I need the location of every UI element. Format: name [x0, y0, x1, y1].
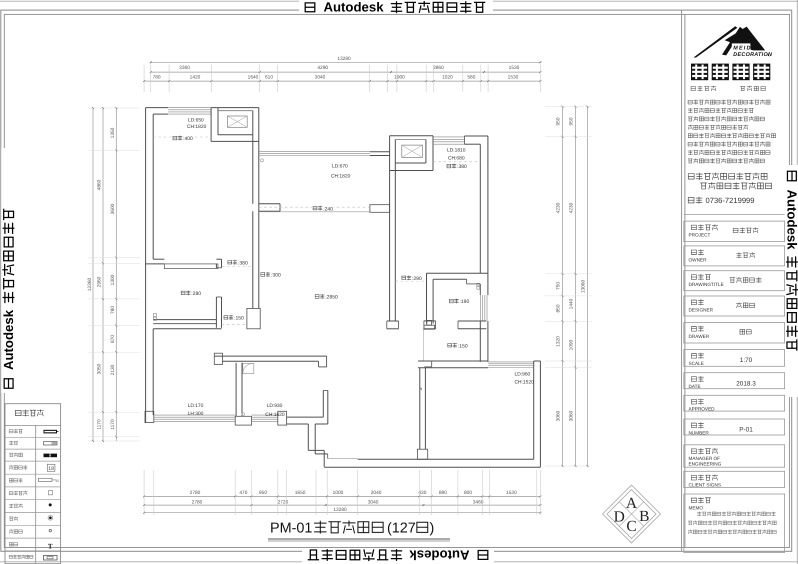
svg-text:2960: 2960 [97, 276, 103, 287]
svg-text:T: T [48, 542, 53, 550]
svg-text:950: 950 [569, 117, 575, 125]
svg-text:1020: 1020 [442, 75, 453, 81]
svg-text:MEIDI: MEIDI [733, 46, 754, 52]
svg-text:D: D [614, 508, 625, 525]
svg-text:850: 850 [556, 304, 562, 312]
svg-text:NUMBER: NUMBER [689, 430, 710, 435]
svg-text::380: :380 [238, 260, 248, 266]
svg-text:3040: 3040 [368, 500, 379, 506]
svg-text:P-01: P-01 [739, 427, 753, 434]
svg-text:CH:1820: CH:1820 [331, 174, 351, 180]
svg-text:4290: 4290 [317, 65, 328, 71]
svg-text:Autodesk: Autodesk [323, 0, 384, 15]
svg-text:DATE: DATE [689, 384, 701, 389]
svg-text:CH:1820: CH:1820 [187, 124, 207, 130]
svg-text::2850: :2850 [325, 295, 338, 301]
svg-text:DESIGNER: DESIGNER [689, 307, 714, 312]
svg-text:SCALE: SCALE [689, 361, 704, 366]
svg-text:PM-01: PM-01 [270, 521, 312, 537]
svg-text:4230: 4230 [569, 202, 575, 213]
svg-text:DRAWER: DRAWER [689, 334, 710, 339]
svg-text::280: :280 [191, 291, 201, 297]
svg-text:ENGINEERING: ENGINEERING [689, 461, 722, 466]
svg-text:1170: 1170 [110, 419, 116, 430]
svg-text:3060: 3060 [569, 410, 575, 421]
svg-text:2720: 2720 [278, 500, 289, 506]
svg-text::150: :150 [234, 316, 244, 322]
svg-text:13280: 13280 [337, 56, 351, 62]
svg-text:LD:930: LD:930 [267, 403, 283, 409]
svg-text:4230: 4230 [556, 202, 562, 213]
svg-text:3040: 3040 [315, 75, 326, 81]
svg-text:1000: 1000 [333, 490, 344, 496]
svg-text:MANAGER OF: MANAGER OF [689, 456, 721, 461]
svg-text::240: :240 [323, 206, 333, 212]
svg-text::190: :190 [460, 299, 470, 305]
svg-text:B: B [639, 508, 649, 525]
svg-text:2130: 2130 [110, 364, 116, 375]
svg-text:18: 18 [48, 466, 54, 472]
svg-text:OWNER: OWNER [689, 257, 708, 262]
svg-text::380: :380 [457, 164, 467, 170]
svg-text:1530: 1530 [509, 65, 520, 71]
svg-text:CH:680: CH:680 [448, 156, 465, 162]
svg-text:870: 870 [110, 335, 116, 343]
svg-text:2860: 2860 [433, 65, 444, 71]
svg-text:Autodesk: Autodesk [785, 189, 798, 250]
svg-text:1:70: 1:70 [740, 357, 753, 364]
svg-text:3600: 3600 [110, 203, 116, 214]
svg-text:Autodesk: Autodesk [409, 548, 470, 563]
svg-text:1090: 1090 [569, 339, 575, 350]
svg-text:780: 780 [153, 75, 161, 81]
svg-text:1440: 1440 [569, 298, 575, 309]
svg-text:1900: 1900 [394, 75, 405, 81]
svg-text:1350: 1350 [110, 127, 116, 138]
svg-text:(127: (127 [387, 521, 416, 537]
svg-text:LH:300: LH:300 [188, 411, 204, 417]
svg-text:430: 430 [418, 490, 426, 496]
svg-text:950: 950 [259, 490, 267, 496]
svg-text:3060: 3060 [556, 410, 562, 421]
svg-text:LD:170: LD:170 [188, 403, 204, 409]
svg-text:C: C [626, 518, 636, 535]
svg-text:1640: 1640 [248, 75, 259, 81]
svg-text:780: 780 [110, 306, 116, 314]
svg-text::290: :290 [412, 276, 422, 282]
svg-text:12360: 12360 [87, 278, 93, 292]
svg-text:3050: 3050 [97, 363, 103, 374]
svg-text:MEMO: MEMO [689, 505, 704, 510]
svg-text:1650: 1650 [295, 490, 306, 496]
svg-text:DECORATION: DECORATION [733, 52, 772, 58]
svg-text:13060: 13060 [581, 280, 587, 294]
svg-text:APPROVED: APPROVED [689, 407, 716, 412]
svg-text:LD:1810: LD:1810 [447, 148, 466, 154]
svg-text:DRAWINGTITLE: DRAWINGTITLE [689, 282, 724, 287]
svg-text:2018.3: 2018.3 [736, 380, 756, 387]
svg-text:950: 950 [556, 117, 562, 125]
svg-text:750: 750 [556, 282, 562, 290]
svg-text:580: 580 [467, 75, 475, 81]
svg-text:470: 470 [239, 490, 247, 496]
svg-text:1530: 1530 [508, 75, 519, 81]
svg-text:PROJECT: PROJECT [689, 233, 711, 238]
svg-text:610: 610 [265, 75, 273, 81]
svg-text:2780: 2780 [192, 500, 203, 506]
svg-text:1170: 1170 [97, 419, 103, 430]
svg-text:3360: 3360 [179, 65, 190, 71]
svg-text:LD:960: LD:960 [515, 372, 531, 378]
svg-text:CLIENT SIGNS: CLIENT SIGNS [689, 483, 721, 488]
svg-text:4860: 4860 [97, 179, 103, 190]
svg-text:Autodesk: Autodesk [1, 309, 16, 370]
svg-text:880: 880 [439, 490, 447, 496]
svg-text::300: :300 [271, 273, 281, 279]
svg-text:1530: 1530 [506, 490, 517, 496]
svg-text:CH:1620: CH:1620 [265, 412, 285, 418]
svg-text:2040: 2040 [371, 490, 382, 496]
svg-text:LD:650: LD:650 [188, 117, 204, 123]
svg-text:800: 800 [464, 490, 472, 496]
svg-text:1300: 1300 [110, 274, 116, 285]
svg-text:1420: 1420 [190, 75, 201, 81]
svg-text:13280: 13280 [333, 507, 347, 513]
svg-text:): ) [430, 521, 435, 537]
svg-text::150: :150 [458, 343, 468, 349]
svg-text:2780: 2780 [190, 490, 201, 496]
svg-text:45: 45 [55, 479, 59, 483]
svg-text:A: A [626, 495, 638, 512]
svg-text::400: :400 [183, 136, 193, 142]
svg-text:LD:670: LD:670 [332, 164, 348, 170]
svg-text:1320: 1320 [556, 336, 562, 347]
svg-text:0736-7219999: 0736-7219999 [706, 196, 755, 205]
svg-text:CH:1520: CH:1520 [515, 379, 535, 385]
